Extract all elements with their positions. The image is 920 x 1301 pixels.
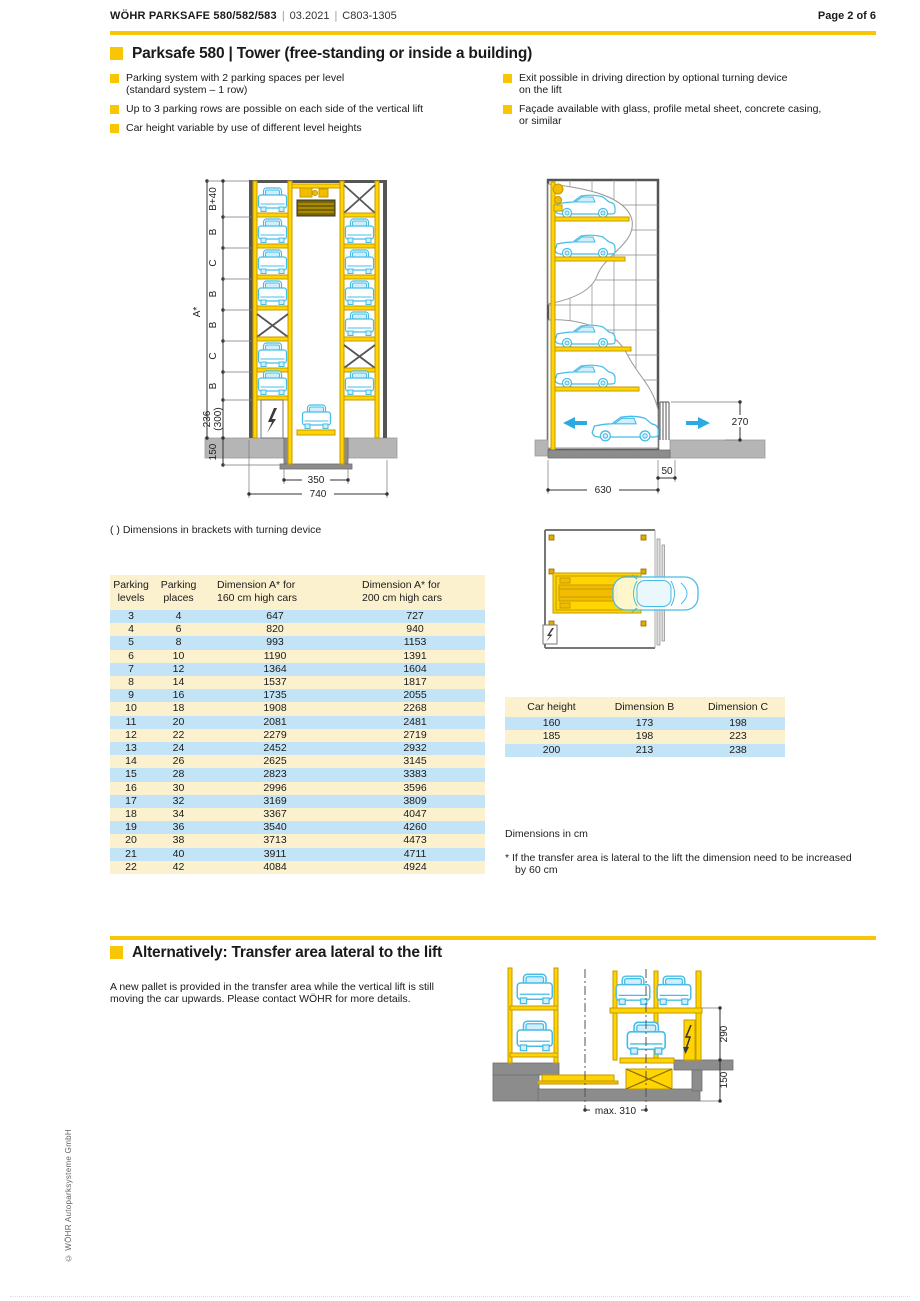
table-row: 112020812481 <box>110 716 485 729</box>
table-row: 122222792719 <box>110 729 485 742</box>
table-row: 152828233383 <box>110 768 485 781</box>
table-row: 183433674047 <box>110 808 485 821</box>
lift-door-panel <box>683 1020 695 1060</box>
section-bullet-square-icon <box>110 47 123 60</box>
bullet-square-icon <box>503 74 512 83</box>
brackets-note: ( ) Dimensions in brackets with turning … <box>110 524 321 536</box>
dim-label: C <box>208 259 219 266</box>
dim-label-pit-depth: 150 <box>719 1071 730 1088</box>
copyright-text: © WÖHR Autoparksysteme GmbH <box>64 1129 73 1263</box>
table-row: 200213238 <box>505 744 785 757</box>
dim-label: B <box>208 290 219 297</box>
dim-label-max-width: max. 310 <box>595 1106 637 1117</box>
bullet-item: Up to 3 parking rows are possible on eac… <box>110 103 470 115</box>
section1-title: Parksafe 580 | Tower (free-standing or i… <box>132 45 532 63</box>
lateral-transfer-diagram: 290 150 max. 310 <box>488 963 733 1118</box>
front-view-diagram: A* B+40 B C B B C B 236 (300) 150 <box>185 172 415 507</box>
dim-label: C <box>208 352 219 359</box>
section2-paragraph: A new pallet is provided in the transfer… <box>110 981 455 1005</box>
col-header-dim-c: Dimension C <box>691 697 785 717</box>
parked-car <box>616 976 650 1004</box>
datasheet-page: WÖHR PARKSAFE 580/582/583|03.2021|C803-1… <box>0 0 920 1301</box>
table-row: 34647727 <box>110 610 485 623</box>
control-cabinet <box>543 625 557 644</box>
entry-gate <box>660 402 669 440</box>
drive-out-arrow-icon <box>686 417 710 429</box>
bullet-item: Car height variable by use of different … <box>110 122 470 134</box>
dim-label-offset: 50 <box>661 466 673 477</box>
table-row: 160173198 <box>505 717 785 730</box>
bullet-text: Up to 3 parking rows are possible on eac… <box>126 103 423 115</box>
dim-label-pit-width: 350 <box>308 475 325 486</box>
table-row: 71213641604 <box>110 663 485 676</box>
bullet-item: Parking system with 2 parking spaces per… <box>110 72 470 96</box>
parking-levels-table: Parking levels Parking places Dimension … <box>110 575 485 874</box>
bullet-item: Exit possible in driving direction by op… <box>503 72 873 96</box>
table-row: 91617352055 <box>110 689 485 702</box>
dim-label: B <box>208 382 219 389</box>
table-row: 132424522932 <box>110 742 485 755</box>
brand-title: WÖHR PARKSAFE 580/582/583 <box>110 10 277 22</box>
col-header-dim-b: Dimension B <box>598 697 691 717</box>
table-row: 46820940 <box>110 623 485 636</box>
table-row: 193635404260 <box>110 821 485 834</box>
table-row: 203837134473 <box>110 834 485 847</box>
dim-label-overall-width: 740 <box>310 489 327 500</box>
separator: | <box>334 10 337 22</box>
bullet-list-left: Parking system with 2 parking spaces per… <box>110 72 470 141</box>
page-number: Page 2 of 6 <box>818 10 876 22</box>
table-row: 173231693809 <box>110 795 485 808</box>
bullet-text: Parking system with 2 parking spaces per… <box>126 72 344 96</box>
parked-car <box>517 1021 552 1050</box>
parked-cars <box>259 188 374 395</box>
col-header-car-height: Car height <box>505 697 598 717</box>
page-header: WÖHR PARKSAFE 580/582/583|03.2021|C803-1… <box>110 10 876 22</box>
doc-code: C803-1305 <box>342 10 396 22</box>
bullet-item: Façade available with glass, profile met… <box>503 103 873 127</box>
table-row: 101819082268 <box>110 702 485 715</box>
col-header-dim200: Dimension A* for 200 cm high cars <box>345 575 485 610</box>
section2-title: Alternatively: Transfer area lateral to … <box>132 944 442 962</box>
bullet-square-icon <box>503 105 512 114</box>
table-row: 214039114711 <box>110 848 485 861</box>
car-on-lift <box>303 405 331 429</box>
accent-rule <box>110 936 876 940</box>
car-top-view <box>613 575 698 612</box>
parked-car <box>517 974 552 1003</box>
accent-rule <box>110 31 876 35</box>
table-row: 61011901391 <box>110 650 485 663</box>
car-height-table: Car height Dimension B Dimension C 16017… <box>505 697 785 757</box>
bullet-square-icon <box>110 74 119 83</box>
section-bullet-square-icon <box>110 946 123 959</box>
bullet-text: Car height variable by use of different … <box>126 122 362 134</box>
control-cabinet <box>261 400 283 438</box>
dim-label-pit-alt: (300) <box>213 407 224 430</box>
table-row: 224240844924 <box>110 861 485 874</box>
page-edge-line <box>10 1296 910 1297</box>
col-header-levels: Parking levels <box>110 575 152 610</box>
pallet-stack <box>626 1069 672 1089</box>
col-header-places: Parking places <box>152 575 205 610</box>
bullet-square-icon <box>110 124 119 133</box>
table-row: 163029963596 <box>110 782 485 795</box>
table-row: 142626253145 <box>110 755 485 768</box>
dim-label: B <box>208 321 219 328</box>
dim-label-foundation: 150 <box>208 443 219 460</box>
bullet-text: Façade available with glass, profile met… <box>519 103 821 127</box>
separator: | <box>282 10 285 22</box>
table-row: 589931153 <box>110 636 485 649</box>
units-note: Dimensions in cm <box>505 828 588 840</box>
side-view-diagram: 270 630 50 <box>535 172 765 502</box>
bullet-square-icon <box>110 105 119 114</box>
dim-label: B <box>208 228 219 235</box>
doc-date: 03.2021 <box>290 10 330 22</box>
dim-label-width: 630 <box>595 485 612 496</box>
lift-drive-unit <box>292 184 340 216</box>
dim-label-entry-height: 290 <box>719 1025 730 1042</box>
col-header-dim160: Dimension A* for 160 cm high cars <box>205 575 345 610</box>
bullet-list-right: Exit possible in driving direction by op… <box>503 72 873 134</box>
table-row: 185198223 <box>505 730 785 743</box>
parked-car <box>657 976 691 1004</box>
table-row: 81415371817 <box>110 676 485 689</box>
dim-label-entry-height: 270 <box>732 417 749 428</box>
top-view-diagram <box>535 525 705 655</box>
dim-label: B+40 <box>208 187 219 211</box>
dim-label-overall-height: A* <box>192 307 203 318</box>
bullet-text: Exit possible in driving direction by op… <box>519 72 787 96</box>
dim-label-pit: 236 <box>202 410 213 427</box>
asterisk-note: * If the transfer area is lateral to the… <box>505 852 855 876</box>
